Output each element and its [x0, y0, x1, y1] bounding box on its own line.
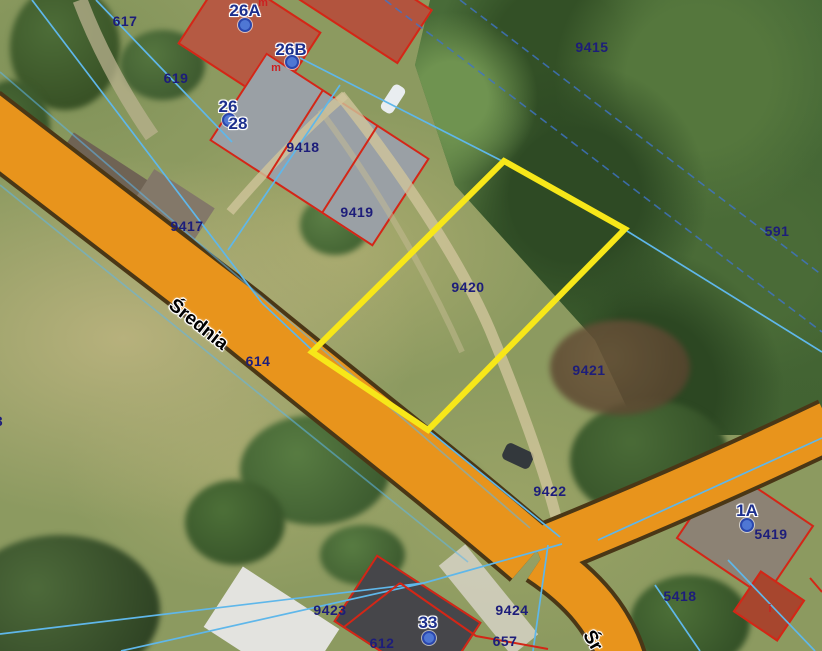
parcel-label: 612 [370, 635, 395, 651]
parcel-label: 619 [164, 70, 189, 86]
parcel-label: 5418 [663, 588, 696, 604]
address-label-28: 28 [229, 114, 248, 134]
parcel-label: 614 [246, 353, 271, 369]
parcel-label: 617 [113, 13, 138, 29]
parcel-label: 3 [0, 413, 3, 429]
address-label-33: 33 [419, 613, 438, 633]
address-marker-26a[interactable] [238, 18, 252, 32]
parcel-label: 9420 [451, 279, 484, 295]
road-label-srednia-south: Śr [577, 627, 606, 651]
address-marker-33[interactable] [422, 631, 436, 645]
parcel-label: 5419 [754, 526, 787, 542]
label-layer: 617 619 9415 9418 9417 9419 9420 591 942… [0, 0, 822, 651]
parcel-label: 591 [765, 223, 790, 239]
parcel-label: 9422 [533, 483, 566, 499]
road-label-srednia: Średnia [164, 295, 232, 356]
aerial-map-canvas[interactable]: 617 619 9415 9418 9417 9419 9420 591 942… [0, 0, 822, 651]
parcel-label: 9424 [495, 602, 528, 618]
parcel-label: 9417 [170, 218, 203, 234]
parcel-label: 9421 [572, 362, 605, 378]
address-marker-26b[interactable] [285, 55, 299, 69]
parcel-label: 9423 [313, 602, 346, 618]
building-symbol-m: m [271, 62, 281, 74]
parcel-label: 9419 [340, 204, 373, 220]
parcel-label: 9418 [286, 139, 319, 155]
address-marker-1a[interactable] [740, 518, 754, 532]
building-symbol-i: i [768, 603, 771, 615]
parcel-label: 9415 [575, 39, 608, 55]
parcel-label: 657 [493, 633, 518, 649]
